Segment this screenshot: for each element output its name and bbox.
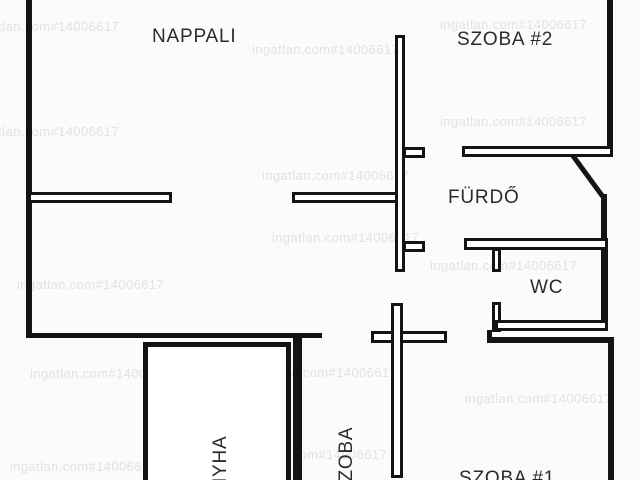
wall-wc-south	[495, 320, 608, 331]
room-label-nappali: NAPPALI	[152, 26, 236, 48]
room-label-furdo: FÜRDŐ	[448, 187, 520, 209]
wall-diagonal-corner	[570, 153, 605, 198]
watermark: ingatlan.com#14006617	[430, 258, 577, 273]
watermark: ingatlan.com#14006617	[17, 277, 164, 292]
wall-cross-vertical	[391, 303, 403, 478]
watermark: ingatlan.com#14006617	[252, 42, 399, 57]
wall-cross-arm	[371, 331, 447, 343]
wall-furdo-right	[601, 194, 607, 243]
watermark: ingatlan.com#14006617	[440, 114, 587, 129]
wall-szoba1-north	[487, 337, 613, 343]
wall-left-outer	[26, 0, 32, 338]
room-label-konyha: KONYHA	[210, 435, 230, 480]
wall-hall-south	[26, 333, 322, 338]
watermark: ingatlan.com#14006617	[0, 124, 119, 139]
watermark: ingatlan.com#14006617	[262, 168, 409, 183]
wall-wc-right	[601, 246, 608, 331]
room-label-wc: WC	[530, 277, 563, 299]
wall-door-frame-lower	[403, 241, 425, 252]
wall-szoba2-south	[462, 146, 613, 157]
room-label-szoba1: SZOBA #1	[459, 468, 555, 480]
wall-nappali-south	[28, 192, 172, 203]
room-label-szoba: SZOBA	[336, 429, 356, 480]
wall-wc-left-upper	[492, 248, 501, 272]
wall-door-frame-upper	[403, 147, 425, 158]
watermark: ingatlan.com#14006617	[10, 459, 157, 474]
room-label-szoba2: SZOBA #2	[457, 29, 553, 51]
wall-right-outer-top	[607, 0, 613, 152]
wall-furdo-south	[464, 238, 608, 250]
floor-plan: ingatlan.com#14006617 ingatlan.com#14006…	[0, 0, 640, 480]
wall-hall-north	[292, 192, 405, 203]
watermark: ingatlan.com#14006617	[465, 391, 612, 406]
wall-central-column	[395, 35, 405, 272]
wall-right-outer-bottom	[608, 337, 614, 480]
wall-corridor-west	[293, 336, 302, 480]
watermark: ingatlan.com#14006617	[0, 19, 119, 34]
